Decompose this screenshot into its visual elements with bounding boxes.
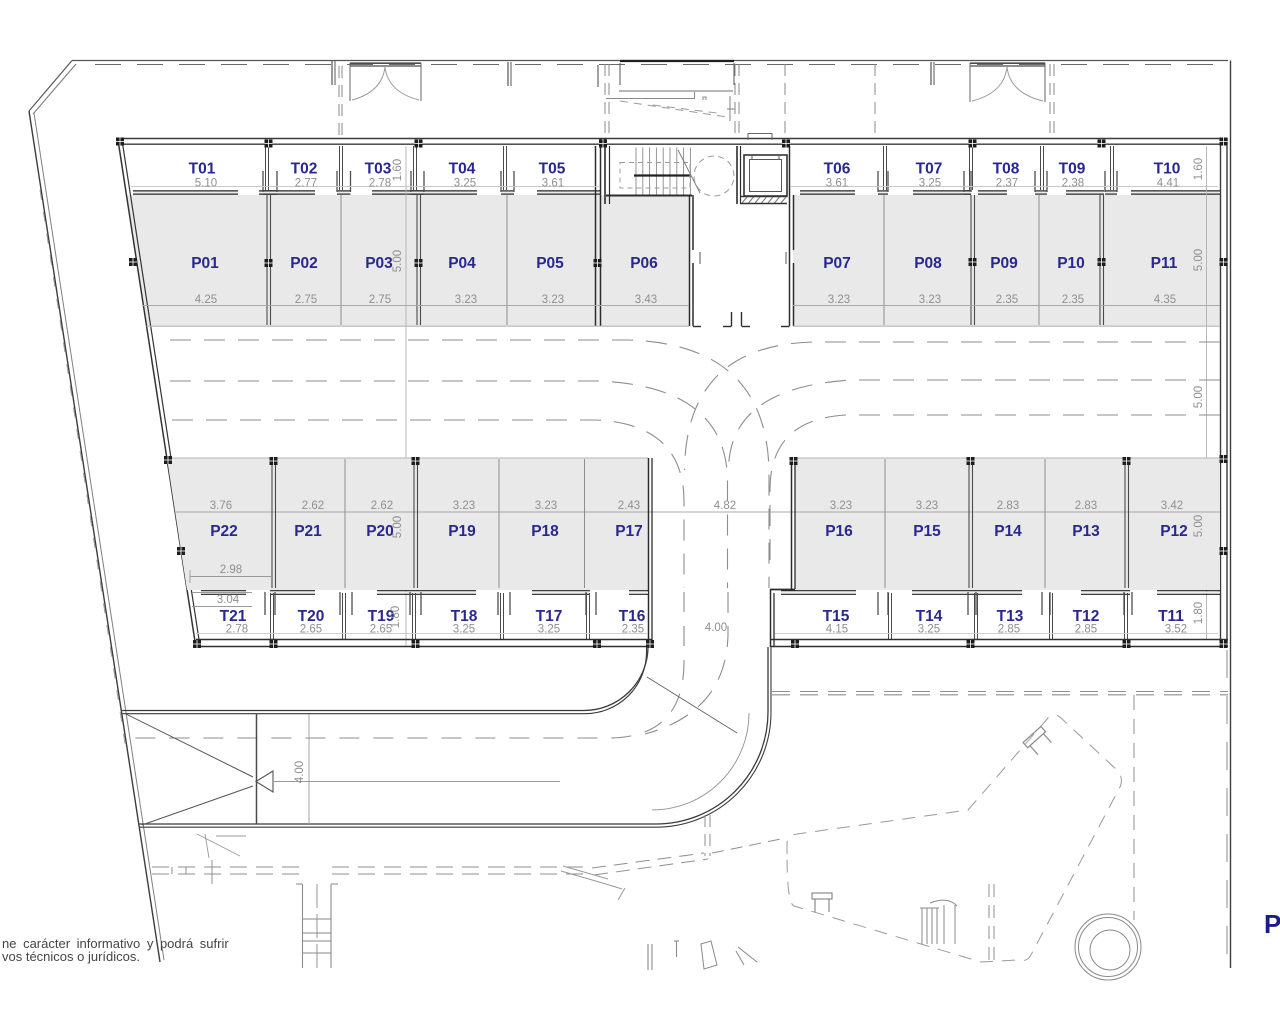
- svg-text:1.80: 1.80: [1193, 602, 1205, 624]
- svg-text:T15: T15: [823, 608, 850, 625]
- svg-text:3.61: 3.61: [826, 178, 848, 190]
- svg-text:2.62: 2.62: [371, 500, 393, 512]
- svg-text:P10: P10: [1057, 255, 1085, 272]
- svg-text:T13: T13: [997, 608, 1024, 625]
- svg-text:4.41: 4.41: [1157, 178, 1179, 190]
- svg-text:2.65: 2.65: [300, 624, 322, 636]
- svg-text:5.00: 5.00: [1193, 249, 1205, 271]
- svg-text:T20: T20: [298, 608, 325, 625]
- svg-text:P17: P17: [615, 523, 643, 540]
- svg-text:T02: T02: [291, 161, 318, 178]
- svg-text:P14: P14: [994, 523, 1022, 540]
- svg-text:P19: P19: [448, 523, 476, 540]
- svg-text:4.25: 4.25: [195, 294, 217, 306]
- svg-text:T18: T18: [451, 608, 478, 625]
- svg-text:4.00: 4.00: [705, 622, 727, 634]
- svg-text:5.00: 5.00: [1193, 515, 1205, 537]
- svg-text:3.25: 3.25: [918, 624, 940, 636]
- svg-text:2.75: 2.75: [295, 294, 317, 306]
- svg-text:1.80: 1.80: [390, 606, 402, 628]
- svg-text:P21: P21: [294, 523, 322, 540]
- svg-text:T09: T09: [1059, 161, 1086, 178]
- svg-text:4.82: 4.82: [714, 500, 736, 512]
- svg-text:P04: P04: [448, 255, 476, 272]
- svg-text:3.25: 3.25: [538, 624, 560, 636]
- svg-text:3.52: 3.52: [1165, 624, 1187, 636]
- svg-text:2.35: 2.35: [622, 624, 644, 636]
- svg-text:3.76: 3.76: [210, 500, 232, 512]
- svg-text:P03: P03: [365, 255, 393, 272]
- svg-text:T21: T21: [220, 608, 247, 625]
- svg-text:P16: P16: [825, 523, 853, 540]
- svg-text:3.25: 3.25: [453, 624, 475, 636]
- svg-text:3.23: 3.23: [542, 294, 564, 306]
- svg-text:2.78: 2.78: [226, 624, 248, 636]
- svg-text:P09: P09: [990, 255, 1018, 272]
- svg-text:2.83: 2.83: [1075, 500, 1097, 512]
- svg-text:3.23: 3.23: [830, 500, 852, 512]
- svg-text:P22: P22: [210, 523, 238, 540]
- svg-text:3.61: 3.61: [542, 178, 564, 190]
- svg-text:3.25: 3.25: [919, 178, 941, 190]
- svg-text:3.23: 3.23: [828, 294, 850, 306]
- svg-text:2.77: 2.77: [295, 178, 317, 190]
- svg-text:P01: P01: [191, 255, 219, 272]
- svg-text:P02: P02: [290, 255, 318, 272]
- svg-text:3.25: 3.25: [454, 178, 476, 190]
- svg-text:2.85: 2.85: [998, 624, 1020, 636]
- svg-text:3.42: 3.42: [1161, 500, 1183, 512]
- svg-text:P11: P11: [1151, 255, 1178, 272]
- svg-text:5.00: 5.00: [1193, 386, 1205, 408]
- svg-text:5.00: 5.00: [392, 250, 404, 272]
- svg-text:3.23: 3.23: [455, 294, 477, 306]
- svg-text:P06: P06: [630, 255, 658, 272]
- svg-text:2.37: 2.37: [996, 178, 1018, 190]
- svg-text:T03: T03: [365, 161, 392, 178]
- svg-text:2.35: 2.35: [1062, 294, 1084, 306]
- svg-text:3.23: 3.23: [535, 500, 557, 512]
- svg-text:P: P: [1264, 909, 1280, 939]
- svg-text:T14: T14: [916, 608, 943, 625]
- svg-text:5.10: 5.10: [195, 178, 217, 190]
- svg-text:3.23: 3.23: [916, 500, 938, 512]
- svg-text:2.98: 2.98: [220, 564, 242, 576]
- svg-text:P07: P07: [823, 255, 851, 272]
- svg-text:2.83: 2.83: [997, 500, 1019, 512]
- svg-text:T17: T17: [536, 608, 563, 625]
- svg-text:2.65: 2.65: [370, 624, 392, 636]
- svg-text:4.00: 4.00: [294, 761, 306, 783]
- svg-text:P05: P05: [536, 255, 564, 272]
- svg-text:P18: P18: [531, 523, 559, 540]
- svg-text:T05: T05: [539, 161, 566, 178]
- svg-text:P20: P20: [366, 523, 394, 540]
- svg-text:2.78: 2.78: [369, 178, 391, 190]
- svg-text:T16: T16: [619, 608, 646, 625]
- svg-text:T11: T11: [1158, 608, 1184, 625]
- svg-text:2.43: 2.43: [618, 500, 640, 512]
- svg-text:T07: T07: [916, 161, 943, 178]
- svg-text:T10: T10: [1154, 161, 1181, 178]
- svg-text:3.23: 3.23: [453, 500, 475, 512]
- svg-text:P08: P08: [914, 255, 942, 272]
- svg-text:T08: T08: [993, 161, 1020, 178]
- svg-text:2.62: 2.62: [302, 500, 324, 512]
- svg-text:T06: T06: [824, 161, 851, 178]
- svg-text:vos técnicos o jurídicos.: vos técnicos o jurídicos.: [2, 949, 140, 964]
- svg-text:1.60: 1.60: [392, 159, 404, 181]
- svg-text:2.75: 2.75: [369, 294, 391, 306]
- svg-text:3.04: 3.04: [217, 594, 240, 606]
- svg-text:5.00: 5.00: [392, 516, 404, 538]
- svg-text:T12: T12: [1073, 608, 1100, 625]
- svg-text:4.35: 4.35: [1154, 294, 1176, 306]
- svg-text:T01: T01: [189, 161, 216, 178]
- svg-text:P15: P15: [913, 523, 941, 540]
- svg-text:2.35: 2.35: [996, 294, 1018, 306]
- svg-text:2.38: 2.38: [1062, 178, 1084, 190]
- svg-text:P13: P13: [1072, 523, 1100, 540]
- svg-text:2.85: 2.85: [1075, 624, 1097, 636]
- svg-text:3.43: 3.43: [635, 294, 657, 306]
- svg-text:3.23: 3.23: [919, 294, 941, 306]
- svg-text:1.60: 1.60: [1193, 158, 1205, 180]
- svg-text:P12: P12: [1160, 523, 1188, 540]
- svg-text:T04: T04: [449, 161, 476, 178]
- svg-text:4.15: 4.15: [826, 624, 848, 636]
